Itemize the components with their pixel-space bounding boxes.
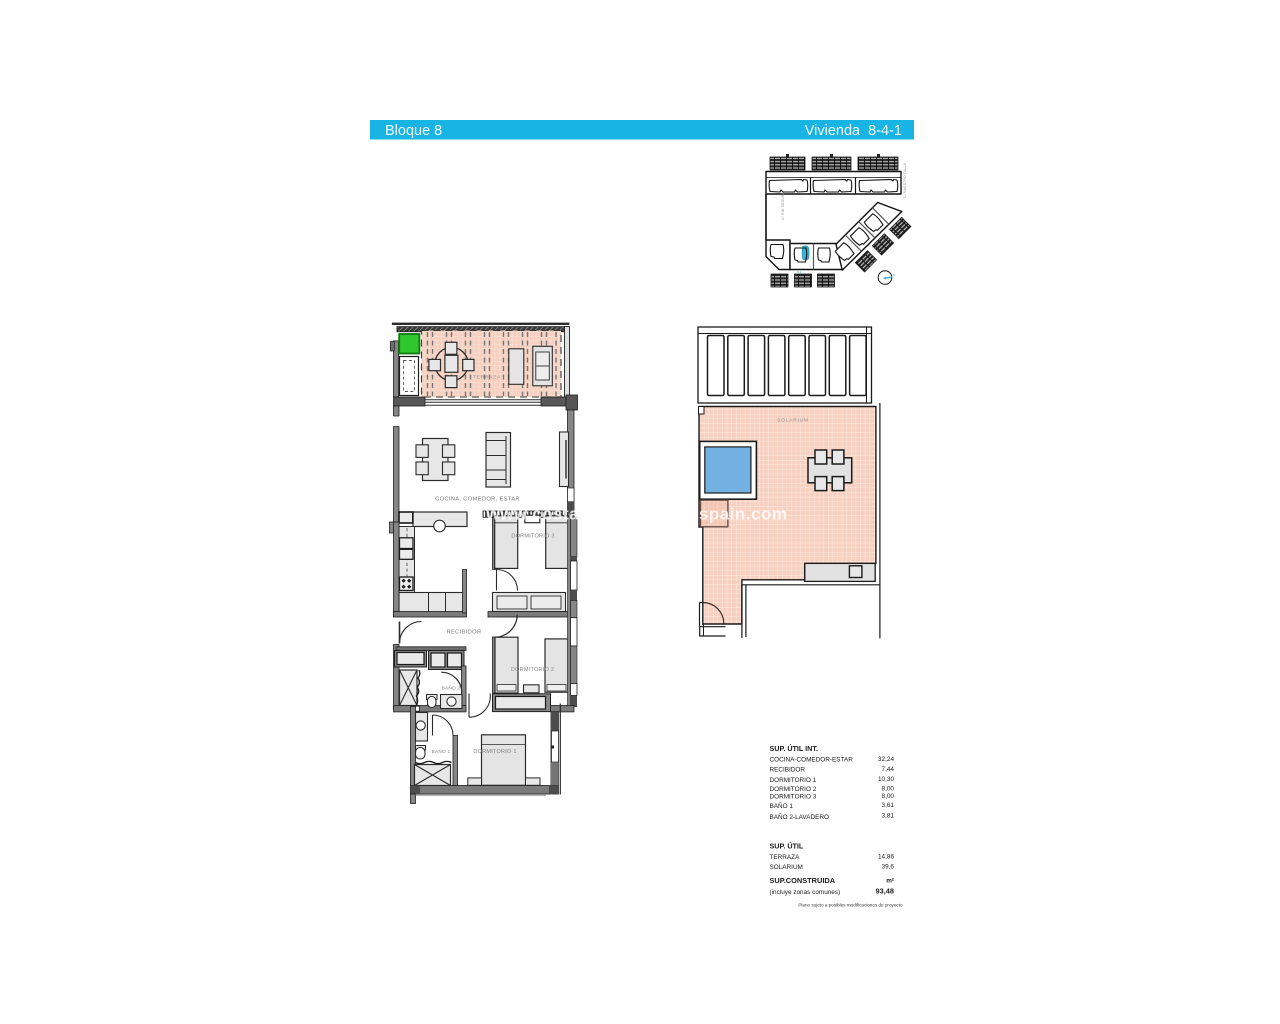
- svg-text:(incluye zonas comunes): (incluye zonas comunes): [770, 889, 841, 896]
- svg-text:m²: m²: [886, 877, 894, 884]
- svg-text:7,44: 7,44: [882, 766, 895, 773]
- svg-text:BAÑO 2: BAÑO 2: [442, 685, 461, 692]
- svg-text:DORMITORIO 1: DORMITORIO 1: [770, 777, 817, 784]
- svg-text:SOLARIUM: SOLARIUM: [777, 418, 808, 424]
- svg-text:C/ RIO SEGURA: C/ RIO SEGURA: [781, 191, 785, 220]
- svg-text:BAÑO 1: BAÑO 1: [432, 748, 451, 755]
- svg-text:Plano sujeto a posibles modifi: Plano sujeto a posibles modificaciones d…: [798, 902, 903, 907]
- svg-text:COCINA-COMEDOR-ESTAR: COCINA-COMEDOR-ESTAR: [770, 757, 854, 764]
- svg-text:SUP. ÚTIL INT.: SUP. ÚTIL INT.: [770, 744, 818, 753]
- svg-text:DORMITORIO 2: DORMITORIO 2: [511, 667, 554, 673]
- svg-text:TERRAZA: TERRAZA: [770, 854, 801, 861]
- svg-text:93,48: 93,48: [876, 887, 895, 896]
- svg-text:TERRAZA: TERRAZA: [473, 375, 501, 381]
- svg-text:BAÑO 2-LAVADERO: BAÑO 2-LAVADERO: [770, 812, 829, 821]
- svg-text:SUP.CONSTRUIDA: SUP.CONSTRUIDA: [770, 876, 836, 885]
- svg-text:N: N: [893, 273, 895, 277]
- svg-text:14,86: 14,86: [878, 853, 894, 860]
- svg-text:8-4: 8-4: [797, 270, 801, 274]
- svg-text:3,61: 3,61: [882, 802, 895, 809]
- svg-text:RECIBIDOR: RECIBIDOR: [770, 767, 806, 774]
- svg-text:39,6: 39,6: [882, 863, 895, 870]
- svg-text:DORMITORIO 1: DORMITORIO 1: [473, 749, 516, 755]
- svg-text:SOLARIUM: SOLARIUM: [770, 864, 803, 871]
- svg-text:DORMITORIO 2: DORMITORIO 2: [770, 786, 817, 793]
- svg-text:10,30: 10,30: [878, 776, 894, 783]
- svg-text:Vivienda 8-4-1: Vivienda 8-4-1: [805, 123, 902, 139]
- svg-text:Bloque 8: Bloque 8: [385, 123, 442, 139]
- svg-text:SUP. ÚTIL: SUP. ÚTIL: [770, 842, 804, 851]
- svg-text:32,24: 32,24: [878, 756, 894, 763]
- svg-text:BAÑO 1: BAÑO 1: [770, 801, 794, 810]
- svg-text:3,81: 3,81: [882, 813, 895, 820]
- svg-text:DORMITORIO 3: DORMITORIO 3: [770, 794, 817, 801]
- svg-text:RECIBIDOR: RECIBIDOR: [447, 630, 482, 636]
- svg-text:C/ MAESTRO FALLA: C/ MAESTRO FALLA: [903, 162, 907, 198]
- svg-text:8,00: 8,00: [882, 785, 895, 792]
- svg-text:www.costablancaholidayspain.co: www.costablancaholidayspain.com: [485, 505, 787, 524]
- svg-text:DORMITORIO 3: DORMITORIO 3: [511, 534, 554, 540]
- svg-text:COCINA, COMEDOR, ESTAR: COCINA, COMEDOR, ESTAR: [435, 497, 520, 503]
- svg-text:8,00: 8,00: [882, 793, 895, 800]
